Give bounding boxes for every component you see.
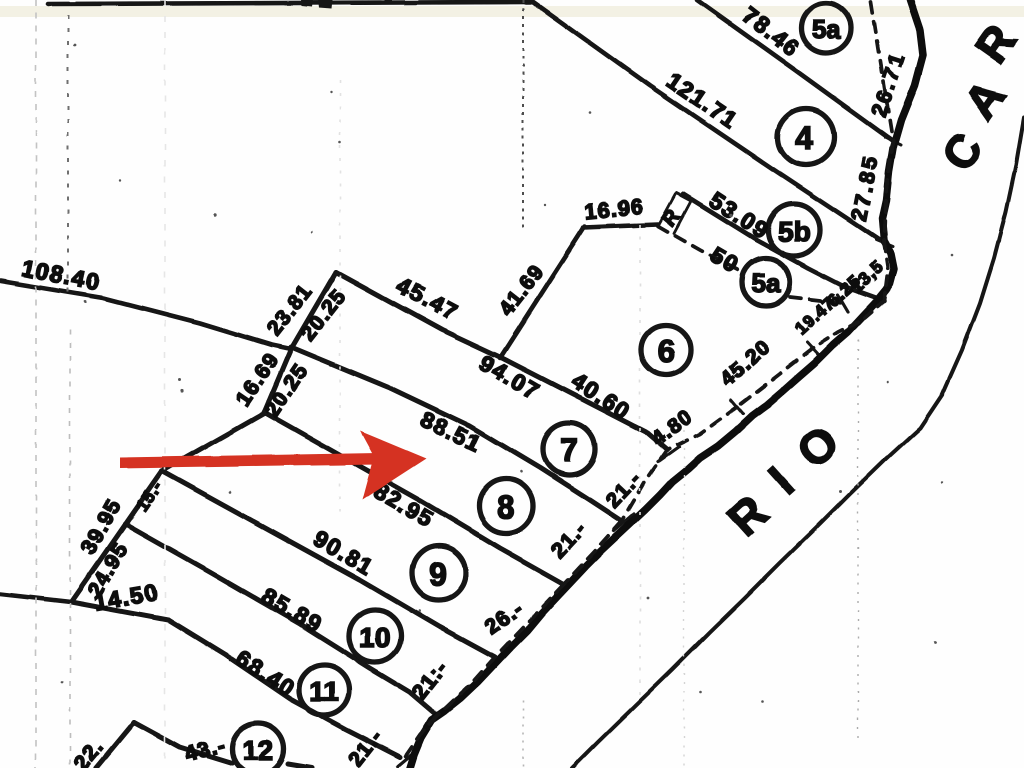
svg-text:11: 11: [309, 676, 339, 707]
svg-text:12: 12: [242, 735, 273, 766]
svg-text:9: 9: [429, 556, 447, 592]
svg-text:7: 7: [560, 432, 578, 468]
svg-text:6: 6: [657, 333, 675, 369]
svg-text:4: 4: [795, 120, 813, 156]
svg-text:5a: 5a: [812, 14, 841, 44]
svg-text:8: 8: [497, 489, 515, 525]
svg-text:5b: 5b: [778, 216, 811, 247]
svg-text:5a: 5a: [752, 268, 781, 298]
svg-text:10: 10: [359, 622, 390, 653]
